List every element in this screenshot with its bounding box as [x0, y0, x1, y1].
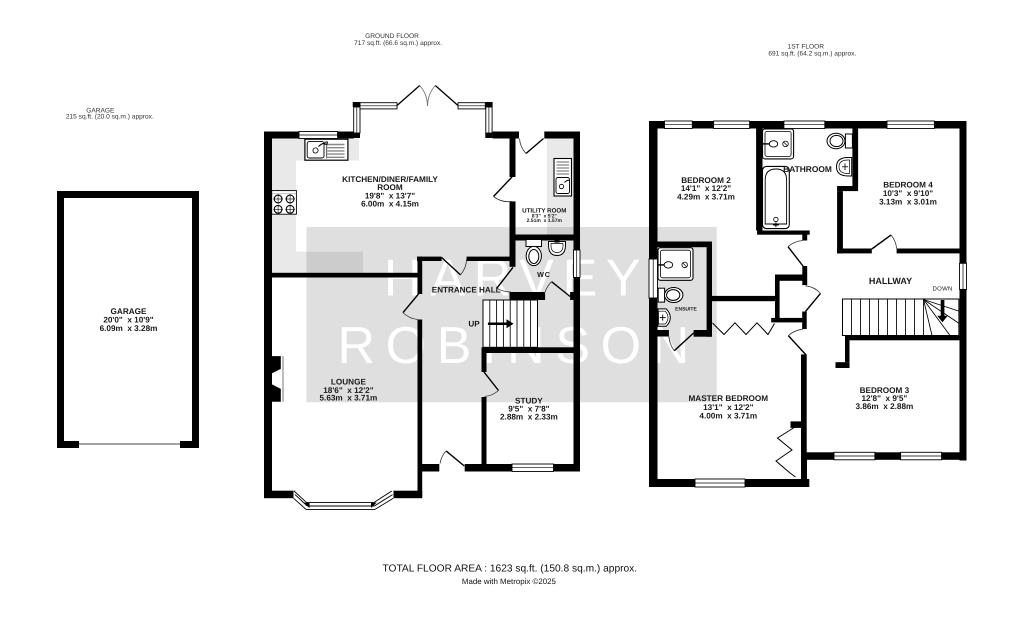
svg-text:6.00m x 4.15m: 6.00m x 4.15m	[361, 199, 419, 208]
svg-text:691 sq.ft. (64.2 sq.m.) approx: 691 sq.ft. (64.2 sq.m.) approx.	[768, 50, 856, 57]
svg-text:HALLWAY: HALLWAY	[869, 276, 912, 286]
svg-text:4.00m x 3.71m: 4.00m x 3.71m	[699, 412, 757, 421]
svg-text:215 sq.ft. (20.0 sq.m.) approx: 215 sq.ft. (20.0 sq.m.) approx.	[66, 114, 154, 121]
svg-text:BATHROOM: BATHROOM	[783, 164, 832, 174]
svg-text:717 sq.ft. (66.6 sq.m.) approx: 717 sq.ft. (66.6 sq.m.) approx.	[354, 40, 442, 47]
svg-text:3.86m x 2.88m: 3.86m x 2.88m	[855, 402, 913, 411]
svg-text:WC: WC	[537, 270, 551, 279]
svg-text:DOWN: DOWN	[932, 285, 952, 292]
svg-text:ENSUITE: ENSUITE	[675, 307, 697, 313]
svg-text:Made with Metropix ©2025: Made with Metropix ©2025	[462, 577, 557, 586]
svg-text:5.63m x 3.71m: 5.63m x 3.71m	[319, 394, 377, 403]
svg-text:4.29m x 3.71m: 4.29m x 3.71m	[677, 192, 735, 201]
svg-text:MASTER BEDROOM: MASTER BEDROOM	[688, 394, 768, 403]
svg-text:2.88m x 2.33m: 2.88m x 2.33m	[500, 413, 558, 422]
svg-text:2.51m x 1.57m: 2.51m x 1.57m	[527, 218, 563, 224]
svg-text:6.09m x 3.28m: 6.09m x 3.28m	[100, 324, 158, 333]
svg-text:TOTAL FLOOR AREA : 1623 sq.ft.: TOTAL FLOOR AREA : 1623 sq.ft. (150.8 sq…	[382, 564, 637, 575]
svg-text:ENTRANCE HALL: ENTRANCE HALL	[432, 285, 501, 294]
svg-text:UP: UP	[468, 320, 480, 329]
svg-text:13'1" x 12'2": 13'1" x 12'2"	[703, 403, 753, 412]
svg-text:3.13m x 3.01m: 3.13m x 3.01m	[879, 198, 937, 207]
